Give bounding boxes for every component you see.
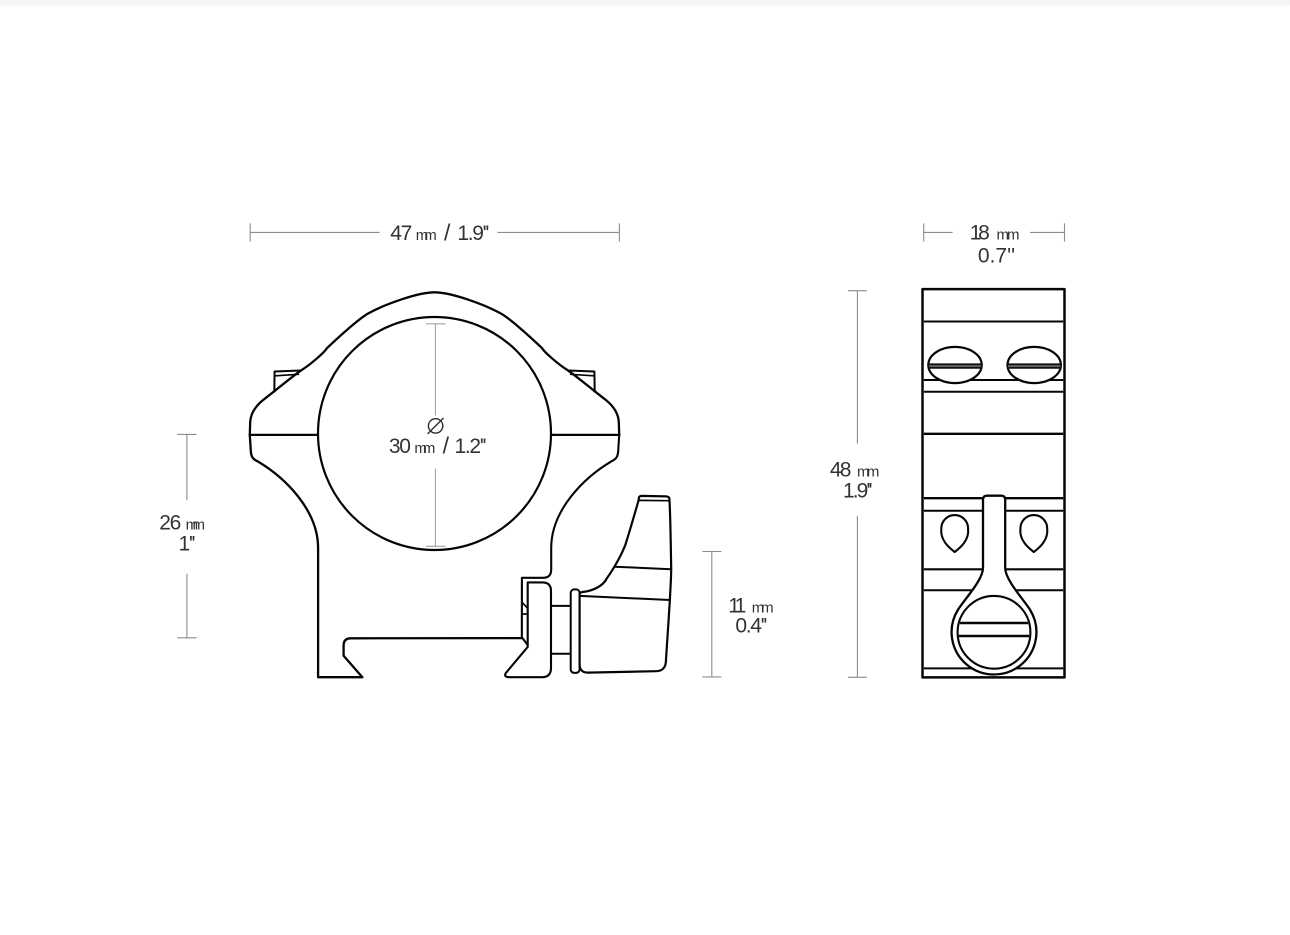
svg-text:mm: mm [186,516,205,533]
svg-text:1.9'': 1.9'' [843,479,873,502]
svg-text:48: 48 [830,459,852,482]
svg-text:0.7'': 0.7'' [978,244,1015,267]
svg-text:mm: mm [416,227,437,244]
svg-text:0.4'': 0.4'' [735,615,767,638]
svg-text:mm: mm [857,464,879,481]
svg-text:1.9'': 1.9'' [457,222,489,245]
svg-text:mm: mm [414,440,435,457]
svg-text:1.2'': 1.2'' [455,435,487,458]
svg-text:26: 26 [159,511,181,534]
svg-text:/: / [443,433,450,459]
svg-text:mm: mm [997,226,1020,243]
svg-text:1'': 1'' [179,532,196,555]
svg-text:47: 47 [390,222,412,245]
svg-text:30: 30 [389,435,411,458]
svg-text:/: / [444,219,451,245]
svg-text:18: 18 [970,221,990,244]
